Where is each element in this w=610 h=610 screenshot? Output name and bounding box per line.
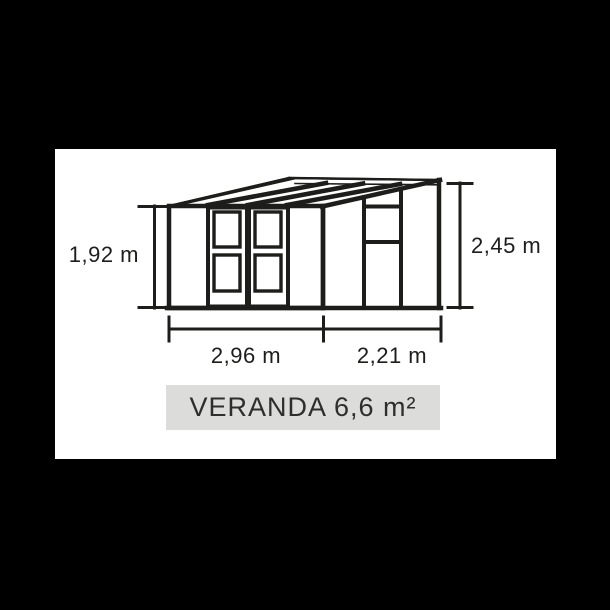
front-height-label: 1,92 m [55, 244, 139, 266]
product-image-canvas: 1,92 m 2,45 m 2,96 m 2,21 m VERANDA 6,6 … [55, 149, 556, 459]
dimension-line-front-height [139, 206, 168, 308]
roof [169, 178, 439, 206]
rear-height-label: 2,45 m [471, 235, 541, 257]
product-title-box: VERANDA 6,6 m² [166, 385, 440, 430]
side-depth-label: 2,21 m [357, 345, 427, 367]
product-title: VERANDA 6,6 m² [189, 394, 416, 421]
dimension-line-widths [169, 317, 441, 341]
front-width-label: 2,96 m [211, 345, 281, 367]
front-wall [169, 206, 323, 308]
dimension-line-rear-height [448, 183, 472, 308]
